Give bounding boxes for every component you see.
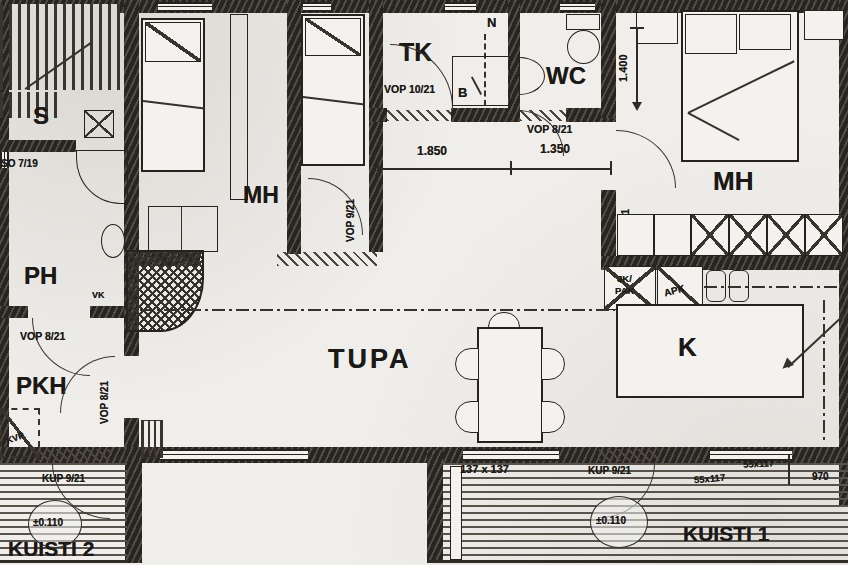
- dining-table: [477, 327, 543, 443]
- porch2-door-threshold: [38, 449, 112, 461]
- porch2-level: ±0.110: [33, 518, 63, 528]
- rail-dim-upper: 55x117: [743, 458, 775, 469]
- window-pane-line: [445, 6, 476, 7]
- dining-chair-left-1: [455, 348, 479, 380]
- dim-tick: [610, 161, 612, 175]
- dim-1350: 1.350: [540, 143, 570, 155]
- wall-washroom-dressing-left: [0, 306, 28, 318]
- closet-cell: [617, 214, 654, 256]
- bedroom2-door-mark: VOP 9/21: [346, 199, 356, 242]
- porch1-door-threshold: [599, 449, 659, 461]
- shower-tray: [76, 150, 128, 204]
- sauna-bench-lower: [0, 92, 60, 118]
- pillow-right: [739, 14, 791, 50]
- closet-cell-hatched: [729, 214, 767, 256]
- rail-dim-lower: 55x117: [694, 473, 726, 485]
- dim-1400: 1.400: [618, 54, 629, 82]
- porch2-door-mark: KUP 9/21: [42, 474, 85, 484]
- room-label-living: TUPA: [328, 346, 412, 373]
- fridge-label-1: JK/: [617, 274, 632, 284]
- wardrobe-bedroom1: [230, 14, 248, 200]
- porch1-step-strip: [450, 466, 462, 560]
- window-pane-line: [463, 454, 559, 455]
- closet-cell: [654, 214, 691, 256]
- ridge-line-living: [140, 309, 615, 311]
- closet-cell-hatched: [805, 214, 843, 256]
- dresser-bedroom1: [148, 206, 218, 252]
- window-pane-line: [303, 6, 331, 7]
- toilet-cistern: [566, 14, 600, 30]
- porch-step: [141, 420, 163, 458]
- fireplace: [126, 250, 204, 332]
- wall-utility-bottom-mid: [451, 108, 520, 122]
- dresser-divider: [181, 207, 182, 251]
- wall-porch1-divider: [427, 450, 443, 563]
- window-bedroom1: [158, 2, 212, 12]
- wall-wc-bedroom-upper: [601, 0, 616, 118]
- porch2-rail: [0, 560, 128, 563]
- washbasin: [101, 224, 125, 258]
- boiler-mark: B: [458, 86, 467, 99]
- utility-door-threshold: [387, 110, 451, 121]
- bed-2-pillow: [305, 18, 361, 56]
- ridge-line-kitchen: [704, 286, 848, 288]
- dim-1400-arrow: [632, 102, 642, 111]
- wall-porch2-divider: [125, 447, 142, 563]
- bedroom-door-threshold: [277, 252, 377, 266]
- porch1-post-dim: 137 x 137: [460, 464, 509, 475]
- wall-utility-bottom-left: [369, 108, 387, 122]
- wall-sauna-washroom: [0, 140, 76, 152]
- dim-1850: 1.850: [417, 145, 447, 157]
- niche-mark: N: [487, 16, 496, 29]
- room-label-kitchen: K: [678, 334, 697, 360]
- window-pane-line: [160, 454, 308, 455]
- rail-length-dim: 970: [812, 472, 829, 482]
- washroom-door-mark: VOP 8/21: [20, 331, 65, 342]
- closet-cell-hatched: [691, 214, 729, 256]
- dining-chair-right-1: [541, 348, 565, 380]
- floor-drain-mark: VK: [92, 291, 105, 300]
- wc-sink: [519, 57, 545, 95]
- dim-tick: [377, 161, 379, 175]
- dim-1400-line: [636, 28, 638, 108]
- bed-1-pillow: [145, 22, 201, 62]
- window-bedroom2: [303, 2, 331, 12]
- sauna-bench-upper: [0, 4, 122, 90]
- window-pane-line: [710, 454, 792, 455]
- window-living-left: [160, 449, 308, 461]
- dressing-door-mark: VOP 8/21: [100, 381, 110, 424]
- wc-hall-door-mark: VOP 8/21: [527, 124, 572, 135]
- room-label-dressing: PKH: [16, 374, 67, 398]
- nightstand-right: [804, 10, 844, 40]
- wall-hall-bedroom-lower: [601, 190, 616, 256]
- window-utility: [445, 2, 476, 12]
- sauna-window-mark: SO 7/19: [1, 159, 38, 169]
- wall-washroom-dressing-right: [90, 306, 124, 318]
- utility-door-swing: [390, 44, 453, 108]
- fridge-label-2: PAK: [615, 286, 634, 296]
- wall-bedroom2-utility: [369, 0, 383, 252]
- wall-sauna-east-lower: [124, 418, 139, 449]
- floor-plan: S SO 7/19 PH VK VOP 8/21 PKH VOP 8/21 KV…: [0, 0, 848, 565]
- room-label-porch1: KUISTI 1: [683, 523, 769, 544]
- dim-tick: [510, 161, 512, 175]
- room-label-washroom: PH: [24, 264, 57, 288]
- room-label-wc: WC: [546, 64, 586, 88]
- porch1-level: ±0.110: [596, 516, 626, 526]
- sauna-stove-icon: [84, 110, 114, 138]
- toilet-bowl: [567, 30, 600, 64]
- window-pane-line: [560, 6, 595, 7]
- rail-dim-tick: [788, 455, 790, 485]
- bedroom-door-swing: [616, 130, 676, 188]
- ridge-line-vertical: [823, 300, 825, 440]
- wall-bedroom1-bedroom2: [287, 0, 301, 254]
- room-label-bedroom1: MH: [243, 184, 279, 207]
- room-label-porch2: KUISTI 2: [8, 538, 94, 559]
- room-label-sauna: S: [33, 104, 49, 128]
- closet-cell-hatched: [767, 214, 805, 256]
- window-wc: [560, 2, 595, 12]
- porch1-rail: [428, 560, 848, 563]
- dim-1400-tick: [630, 27, 644, 29]
- utility-door-mark: VOP 10/21: [384, 84, 435, 95]
- window-living-right: [463, 449, 559, 461]
- dining-chair-right-2: [541, 401, 565, 433]
- pillow-left: [685, 14, 737, 54]
- kitchen-island: [616, 304, 804, 398]
- window-pane-line: [158, 6, 212, 7]
- room-label-bedroom2: MH: [713, 168, 753, 194]
- dining-chair-left-2: [455, 401, 479, 433]
- porch1-door-mark: KUP 9/21: [588, 466, 631, 476]
- hall-dimension-line: [378, 168, 612, 170]
